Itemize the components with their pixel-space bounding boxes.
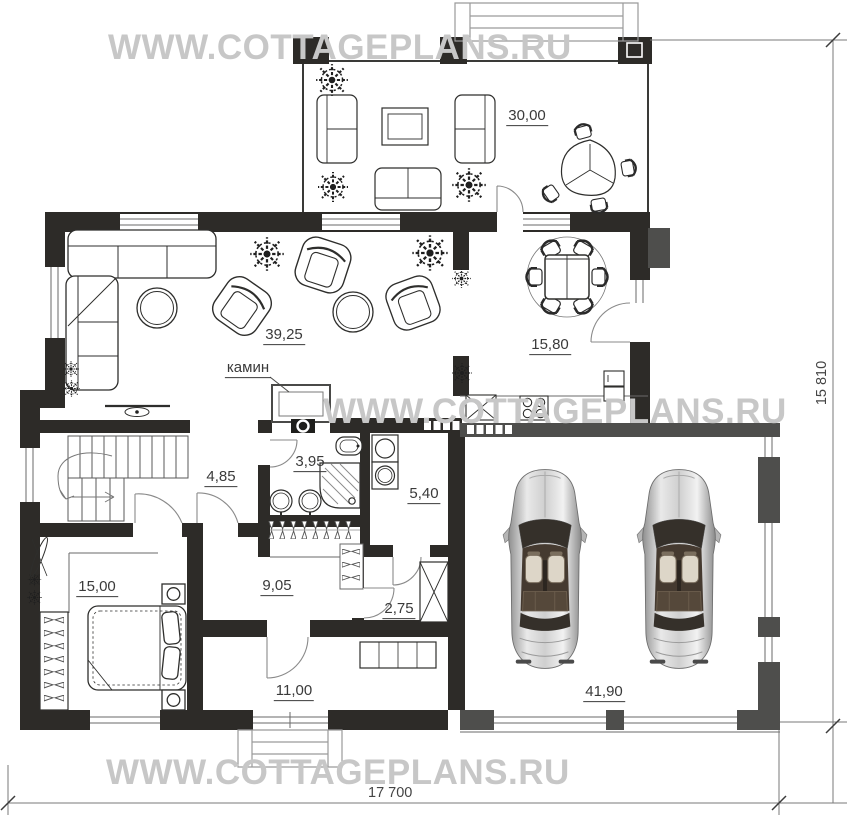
terrace-sofa-right bbox=[455, 95, 495, 163]
room-label-utility: 5,40 bbox=[407, 486, 440, 504]
nightstand bbox=[162, 690, 185, 710]
garage-walls bbox=[460, 228, 780, 730]
kitchen bbox=[460, 371, 648, 420]
room-label-dining: 15,80 bbox=[529, 337, 571, 355]
dining-set bbox=[527, 237, 608, 317]
armchairs bbox=[207, 233, 444, 340]
entry-bench bbox=[360, 642, 436, 668]
bathtub bbox=[336, 437, 362, 455]
sink bbox=[270, 490, 292, 516]
floor-plan-canvas: 30,00 39,25 15,80 4,85 3,95 5,40 15,00 9… bbox=[0, 0, 848, 821]
sink bbox=[299, 490, 321, 516]
terrace-coffee-table bbox=[382, 108, 428, 145]
bed bbox=[88, 606, 186, 690]
bathroom-fixtures bbox=[270, 435, 398, 516]
terrace-sofa-left bbox=[317, 95, 357, 163]
garage-cars bbox=[503, 470, 721, 669]
room-label-garage: 41,90 bbox=[583, 684, 625, 702]
room-label-bedroom: 15,00 bbox=[76, 579, 118, 597]
room-label-terrace: 30,00 bbox=[506, 108, 548, 126]
closet-hanger-row bbox=[269, 521, 360, 539]
terrace-furniture bbox=[317, 95, 637, 214]
room-label-entry-hall: 11,00 bbox=[274, 683, 314, 701]
porch-steps bbox=[238, 730, 342, 767]
terrace-sofa-bottom bbox=[375, 168, 441, 210]
stove bbox=[520, 396, 548, 420]
x-closet bbox=[420, 562, 448, 622]
terrace-steps bbox=[455, 3, 638, 41]
room-label-vestibule: 2,75 bbox=[382, 601, 415, 619]
kitchen-sink bbox=[466, 395, 496, 420]
dimension-height-label: 15 810 bbox=[814, 361, 830, 405]
tv-console bbox=[105, 406, 170, 417]
stairs bbox=[58, 436, 188, 521]
room-label-stair-hall: 4,85 bbox=[204, 469, 237, 487]
closet-hanger-rack bbox=[340, 544, 363, 589]
terrace-table-triangular bbox=[561, 140, 615, 195]
washer-dryer-stack bbox=[372, 435, 398, 489]
bedroom-wardrobe bbox=[40, 612, 68, 710]
floor-plan-drawing bbox=[0, 0, 848, 821]
fireplace bbox=[270, 377, 330, 433]
room-label-corridor: 9,05 bbox=[260, 578, 293, 596]
dimension-width-label: 17 700 bbox=[368, 785, 412, 801]
fridge bbox=[604, 371, 624, 401]
room-label-living-room: 39,25 bbox=[263, 327, 305, 345]
nightstand bbox=[162, 584, 185, 604]
fireplace-label: камин bbox=[225, 360, 271, 378]
room-label-bathroom: 3,95 bbox=[293, 454, 326, 472]
